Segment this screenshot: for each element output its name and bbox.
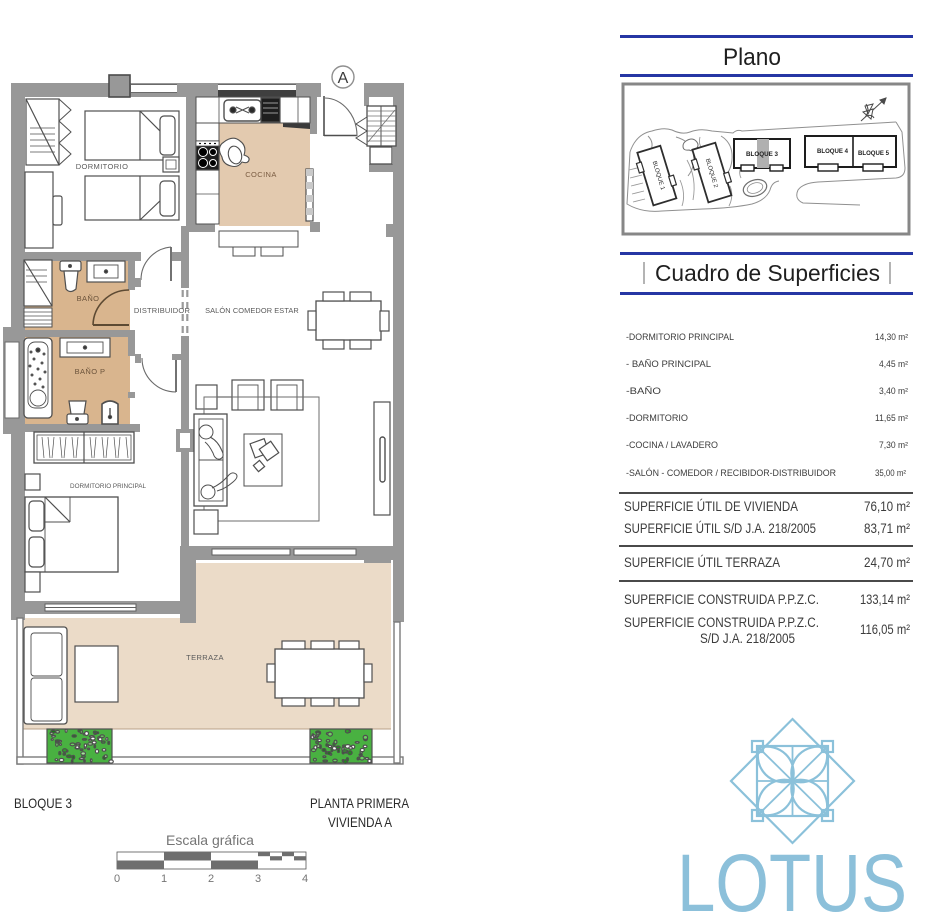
svg-text:7,30 m²: 7,30 m²: [879, 440, 908, 450]
svg-text:VIVIENDA A: VIVIENDA A: [328, 814, 393, 830]
svg-text:BLOQUE 3: BLOQUE 3: [746, 151, 778, 158]
svg-text:76,10 m²: 76,10 m²: [864, 499, 910, 514]
svg-text:BLOQUE 4: BLOQUE 4: [817, 148, 848, 155]
svg-text:TERRAZA: TERRAZA: [186, 653, 224, 662]
svg-text:-DORMITORIO PRINCIPAL: -DORMITORIO PRINCIPAL: [626, 332, 734, 342]
svg-text:-BAÑO: -BAÑO: [626, 386, 661, 396]
svg-text:-DORMITORIO: -DORMITORIO: [626, 413, 688, 423]
svg-text:LOTUS: LOTUS: [677, 838, 907, 914]
svg-text:133,14 m²: 133,14 m²: [860, 592, 910, 607]
svg-text:116,05 m²: 116,05 m²: [860, 622, 910, 637]
svg-text:SUPERFICIE CONSTRUIDA P.P.Z.C.: SUPERFICIE CONSTRUIDA P.P.Z.C.: [624, 592, 819, 607]
svg-text:BAÑO P: BAÑO P: [75, 367, 106, 376]
svg-text:SUPERFICIE CONSTRUIDA P.P.Z.C.: SUPERFICIE CONSTRUIDA P.P.Z.C.: [624, 615, 819, 630]
svg-text:BLOQUE 3: BLOQUE 3: [14, 795, 72, 811]
svg-text:83,71 m²: 83,71 m²: [864, 521, 910, 536]
svg-text:0: 0: [114, 873, 120, 885]
svg-text:SUPERFICIE ÚTIL S/D J.A. 218/2: SUPERFICIE ÚTIL S/D J.A. 218/2005: [624, 521, 816, 536]
svg-text:S/D J.A. 218/2005: S/D J.A. 218/2005: [700, 631, 795, 646]
svg-text:35,00 m²: 35,00 m²: [875, 468, 906, 478]
svg-text:Plano: Plano: [723, 44, 781, 71]
svg-text:2: 2: [208, 873, 214, 885]
svg-text:Cuadro de Superficies: Cuadro de Superficies: [655, 260, 880, 286]
svg-text:DORMITORIO PRINCIPAL: DORMITORIO PRINCIPAL: [70, 484, 147, 490]
svg-text:24,70 m²: 24,70 m²: [864, 555, 910, 570]
svg-text:- BAÑO PRINCIPAL: - BAÑO PRINCIPAL: [626, 359, 711, 369]
svg-text:-COCINA / LAVADERO: -COCINA / LAVADERO: [626, 440, 718, 450]
svg-text:1: 1: [161, 873, 167, 885]
svg-text:3: 3: [255, 873, 261, 885]
svg-text:DISTRIBUIDOR: DISTRIBUIDOR: [134, 306, 191, 315]
svg-text:A: A: [338, 70, 349, 87]
svg-text:14,30 m²: 14,30 m²: [875, 332, 908, 342]
svg-text:SALÓN COMEDOR ESTAR: SALÓN COMEDOR ESTAR: [205, 306, 299, 315]
svg-text:PLANTA PRIMERA: PLANTA PRIMERA: [310, 795, 410, 811]
svg-text:DORMITORIO: DORMITORIO: [76, 162, 129, 171]
svg-text:SUPERFICIE ÚTIL TERRAZA: SUPERFICIE ÚTIL TERRAZA: [624, 555, 780, 570]
svg-text:BAÑO: BAÑO: [77, 294, 100, 303]
svg-text:11,65 m²: 11,65 m²: [875, 413, 908, 423]
svg-text:4,45 m²: 4,45 m²: [879, 359, 908, 369]
svg-text:BLOQUE 5: BLOQUE 5: [858, 150, 889, 157]
svg-text:COCINA: COCINA: [245, 170, 277, 179]
svg-text:4: 4: [302, 873, 308, 885]
svg-text:-SALÓN - COMEDOR / RECIBIDOR-: -SALÓN - COMEDOR / RECIBIDOR-DISTRIBUIDO…: [626, 468, 836, 478]
svg-text:SUPERFICIE ÚTIL DE VIVIENDA: SUPERFICIE ÚTIL DE VIVIENDA: [624, 499, 798, 514]
svg-text:3,40 m²: 3,40 m²: [879, 386, 908, 396]
svg-text:Escala gráfica: Escala gráfica: [166, 832, 254, 848]
